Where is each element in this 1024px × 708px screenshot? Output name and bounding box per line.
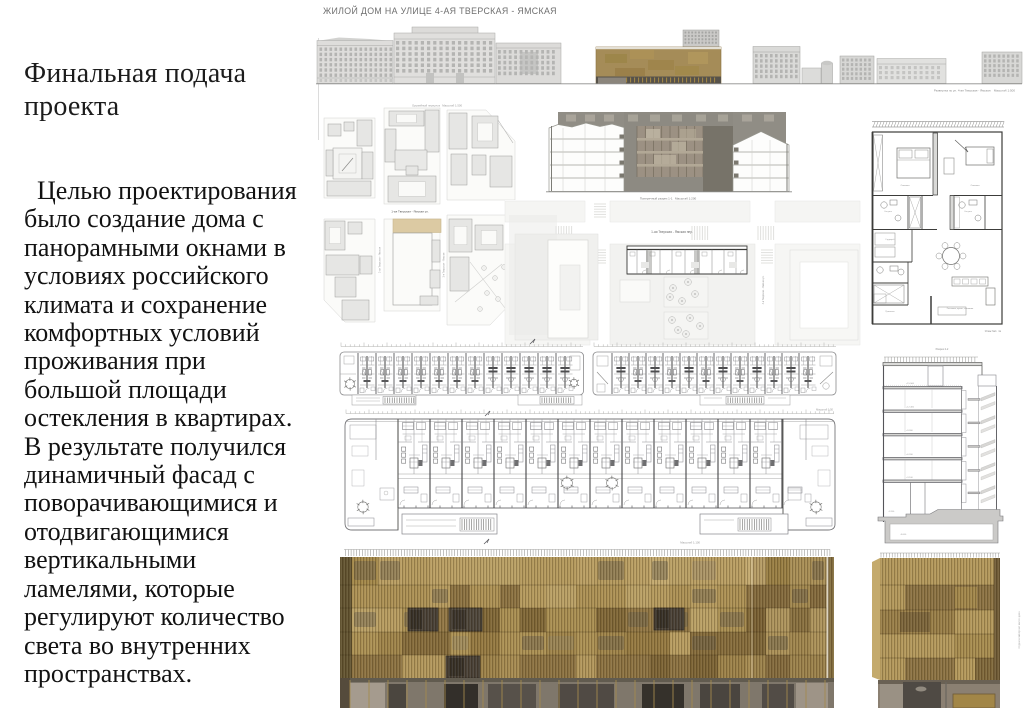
svg-text:+12.400: +12.400 [906, 407, 915, 409]
svg-text:4-я Тверская - Ямская ул.: 4-я Тверская - Ямская ул. [762, 275, 765, 304]
svg-text:2-ая Тверская - Ямская: 2-ая Тверская - Ямская [379, 246, 382, 273]
svg-text:Студенческий проект жилого дом: Студенческий проект жилого дома [1018, 611, 1021, 649]
svg-text:+15.500: +15.500 [906, 383, 915, 385]
svg-text:Санузел: Санузел [884, 211, 893, 213]
svg-text:Прихожая: Прихожая [885, 311, 894, 313]
svg-text:Разрез 2-2: Разрез 2-2 [936, 347, 949, 351]
svg-text:+6.200: +6.200 [906, 454, 914, 456]
svg-text:Развертка по ул. 4-ая Тверская: Развертка по ул. 4-ая Тверская - Ямская … [934, 89, 1015, 93]
svg-text:ЖИЛОЙ ДОМ НА УЛИЦЕ 4-АЯ ТВЕРСК: ЖИЛОЙ ДОМ НА УЛИЦЕ 4-АЯ ТВЕРСКАЯ - ЯМСКА… [323, 5, 557, 16]
svg-text:Спальня: Спальня [901, 185, 911, 187]
svg-text:Санузел: Санузел [964, 211, 973, 213]
svg-text:+3.100: +3.100 [906, 477, 914, 479]
svg-text:Гостиная, кухня, столовая: Гостиная, кухня, столовая [947, 308, 974, 310]
svg-text:1-ая Тверская - Ямская ул.: 1-ая Тверская - Ямская ул. [391, 210, 429, 214]
svg-text:Масштаб 1:50: Масштаб 1:50 [816, 408, 833, 412]
svg-text:3-я Тверская - Ямская: 3-я Тверская - Ямская [443, 252, 446, 277]
svg-text:-1.200: -1.200 [888, 511, 895, 513]
svg-text:Спальня: Спальня [971, 185, 981, 187]
svg-text:Масштаб 1:100: Масштаб 1:100 [680, 541, 700, 545]
svg-text:1-ая Тверская - Ямская пер.: 1-ая Тверская - Ямская пер. [651, 230, 693, 234]
svg-text:-3.000: -3.000 [900, 534, 907, 536]
svg-text:Оружейный переулок Масштаб 1: Оружейный переулок Масштаб 1:500 [412, 104, 462, 108]
svg-text:Этаж №1 1к: Этаж №1 1к [985, 329, 1002, 333]
svg-text:+9.300: +9.300 [906, 430, 914, 432]
svg-text:Поперечный разрез 1-1 Масшта: Поперечный разрез 1-1 Масштаб 1:200 [640, 197, 697, 201]
svg-text:Гардероб: Гардероб [886, 239, 896, 241]
